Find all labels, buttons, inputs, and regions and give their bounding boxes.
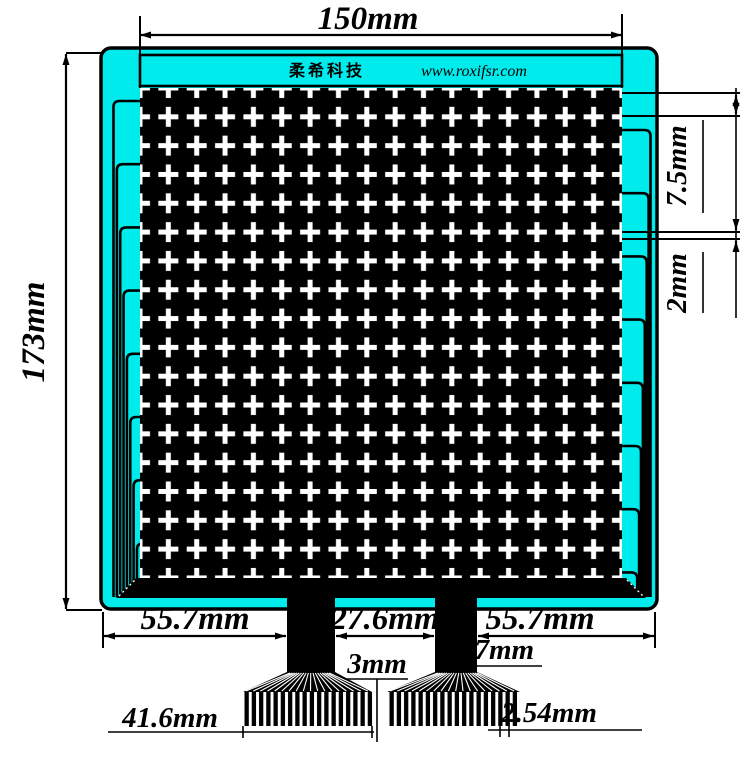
fsr-sensor-drawing: 柔希科技 www.roxifsr.com 150mm 173mm 7 (0, 0, 741, 768)
dim-label-cell-pitch: 7.5mm (661, 125, 693, 206)
dim-label-cell-gap: 2mm (661, 253, 693, 314)
tail-stub-left (287, 590, 335, 673)
dim-label-bottom-left-margin: 55.7mm (140, 601, 249, 637)
dim-label-tail-trace-width: 3mm (346, 648, 407, 680)
dim-label-overall-height: 173mm (16, 282, 52, 383)
dim-bottom-margins: 55.7mm 27.6mm 55.7mm (103, 601, 655, 648)
dim-label-fan-width: 41.6mm (121, 702, 218, 734)
dim-label-overall-width: 150mm (318, 1, 419, 37)
dim-label-tail-width: 17mm (460, 634, 534, 666)
dim-overall-height: 173mm (16, 53, 102, 610)
dim-label-pin-pitch: 2.54mm (500, 697, 597, 729)
bottom-bus-bar (116, 578, 646, 598)
dim-tail-details: 17mm 3mm 41.6mm 2.54mm (108, 634, 642, 742)
pin-comb-right (387, 692, 520, 726)
fan-right (387, 672, 520, 692)
pin-comb-left (243, 692, 373, 726)
dim-label-tail-spacing: 27.6mm (329, 601, 439, 637)
sensor-diagram-canvas: 柔希科技 www.roxifsr.com 150mm 173mm 7 (0, 0, 741, 768)
logo-band (140, 55, 622, 86)
sensor-matrix-grid (140, 88, 622, 578)
dim-label-bottom-right-margin: 55.7mm (485, 601, 594, 637)
brand-website: www.roxifsr.com (421, 63, 527, 80)
brand-name: 柔希科技 (288, 61, 365, 80)
